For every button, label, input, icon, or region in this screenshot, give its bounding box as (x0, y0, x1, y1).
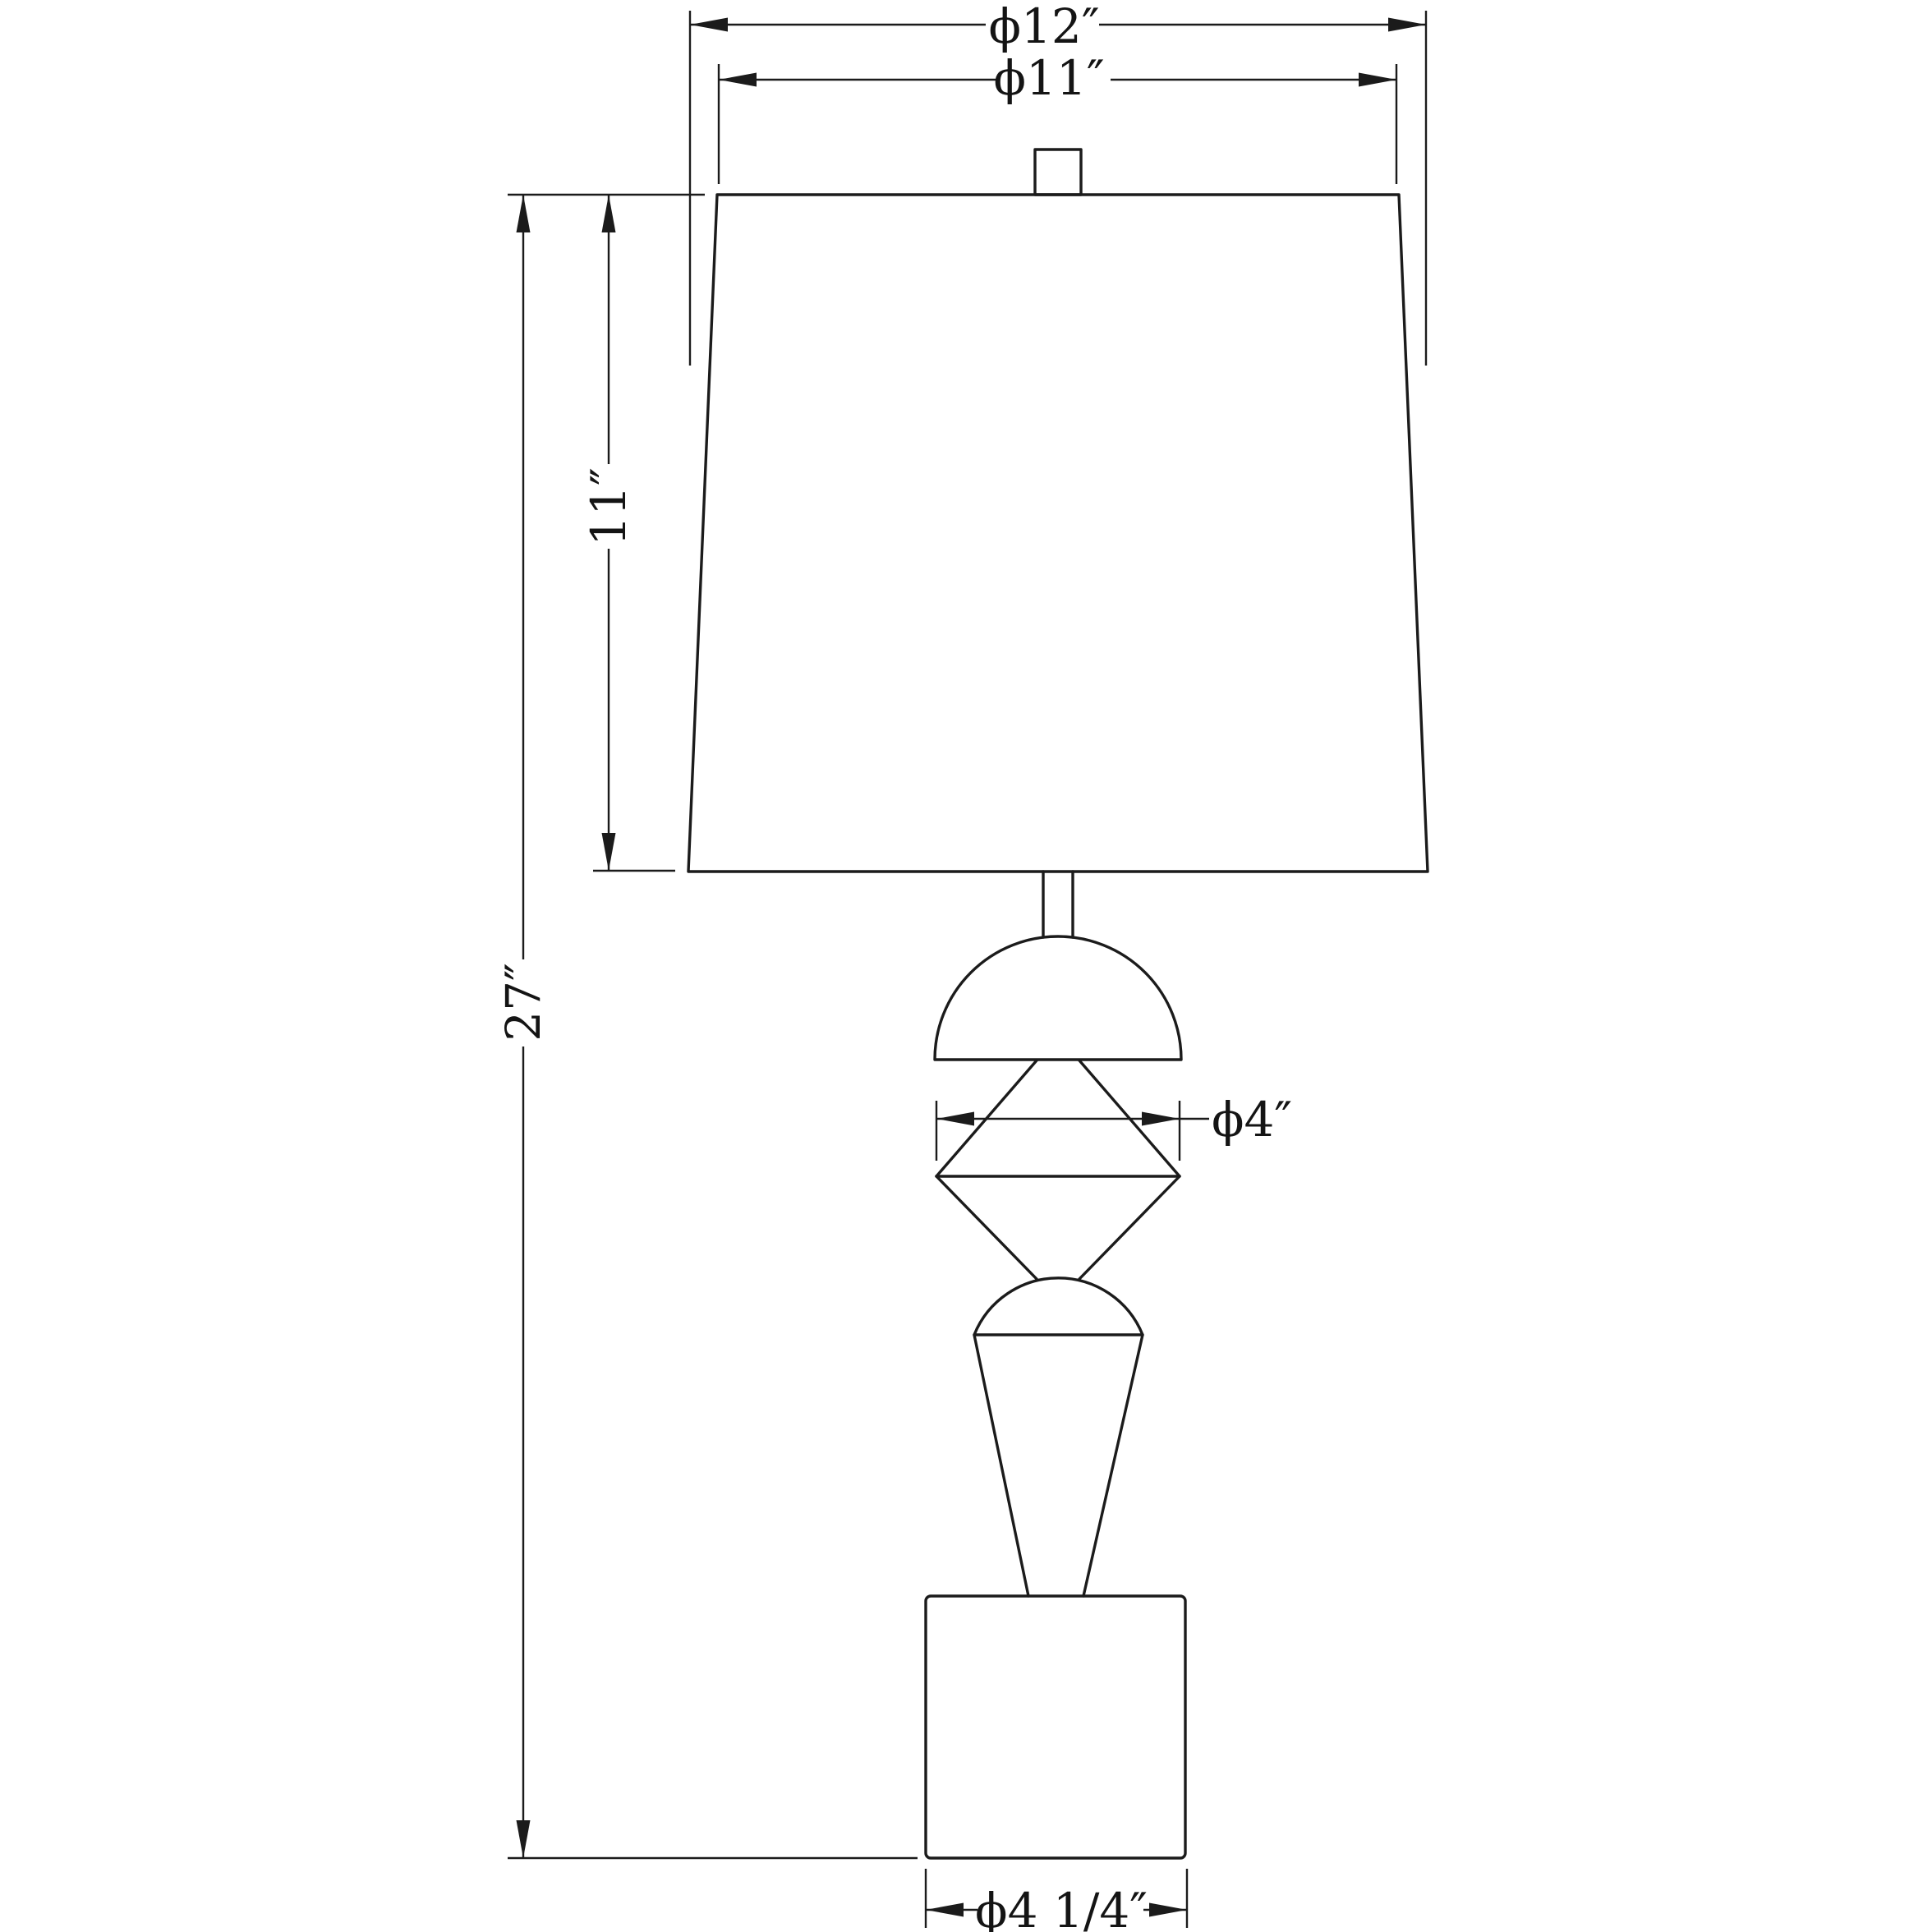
arrow-overall-height-bottom (517, 1820, 531, 1858)
diamond-lower-right-line (1079, 1176, 1180, 1279)
lamp-dimension-diagram: ϕ12″ ϕ11″ 11″ 27″ ϕ4″ ϕ4 1/4″ (0, 0, 1932, 1932)
arrow-shade-top-dia-left (719, 73, 757, 87)
ball-cap-outline (974, 1278, 1143, 1335)
arrow-shade-top-dia-right (1359, 73, 1396, 87)
label-shade-top-diameter: ϕ11″ (993, 50, 1104, 106)
drawing-linework (508, 11, 1428, 1928)
label-base-diameter: ϕ4 1/4″ (975, 1883, 1148, 1932)
label-overall-height: 27″ (495, 963, 551, 1041)
arrow-diamond-dia-left (936, 1112, 974, 1126)
finial-outline (1035, 149, 1081, 195)
arrow-shade-height-top (602, 195, 616, 232)
arrow-shade-bottom-dia-right (1388, 18, 1426, 32)
cone-right-line (1083, 1335, 1143, 1596)
base-outline (926, 1596, 1185, 1858)
shade-outline (688, 195, 1428, 872)
diamond-lower-left-line (936, 1176, 1037, 1279)
cone-left-line (974, 1335, 1028, 1596)
arrow-shade-bottom-dia-left (690, 18, 728, 32)
label-shade-height: 11″ (581, 467, 637, 545)
label-diamond-diameter: ϕ4″ (1212, 1092, 1292, 1148)
arrow-overall-height-top (517, 195, 531, 232)
technical-drawing-canvas: ϕ12″ ϕ11″ 11″ 27″ ϕ4″ ϕ4 1/4″ (0, 0, 1932, 1932)
arrow-shade-height-bottom (602, 833, 616, 871)
dome-outline (935, 936, 1181, 1060)
arrow-base-dia-right (1149, 1903, 1187, 1917)
arrow-base-dia-left (926, 1903, 964, 1917)
arrow-diamond-dia-right (1142, 1112, 1180, 1126)
label-shade-bottom-diameter: ϕ12″ (988, 0, 1099, 54)
